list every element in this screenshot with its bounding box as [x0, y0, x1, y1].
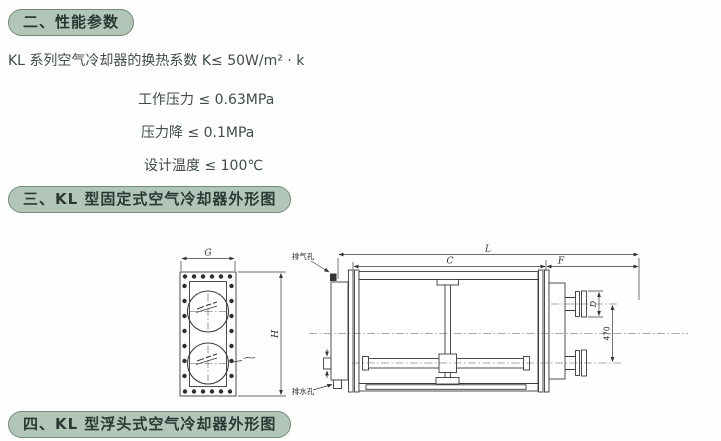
end-view-drawing: G — [180, 249, 286, 397]
side-view-drawing: L C F 排气孔 排水孔 — [292, 245, 688, 397]
dim-label-L: L — [484, 245, 491, 255]
drain-nozzle — [334, 380, 342, 389]
dim-label-C: C — [447, 257, 454, 267]
dim-label-470: 470 — [603, 326, 612, 341]
dim-label-G: G — [204, 249, 211, 259]
design-temp-spec: 设计温度 ≤ 100℃ — [144, 155, 263, 175]
vent-nozzle — [330, 274, 337, 282]
section-title: 二、性能参数 — [23, 13, 119, 31]
page: 二、性能参数 KL 系列空气冷却器的换热系数 K≤ 50W/m² · k 工作压… — [0, 0, 721, 441]
section-header-floating-outline: 四、KL 型浮头式空气冷却器外形图 — [8, 411, 291, 438]
left-water-box — [331, 282, 348, 380]
heat-transfer-spec: KL 系列空气冷却器的换热系数 K≤ 50W/m² · k — [8, 50, 304, 70]
pressure-drop-spec: 压力降 ≤ 0.1MPa — [141, 122, 254, 142]
section-title: 三、KL 型固定式空气冷却器外形图 — [23, 190, 276, 208]
dim-label-D: D — [589, 300, 598, 308]
dim-label-H: H — [271, 330, 281, 339]
technical-drawing: G — [0, 225, 721, 405]
vent-label: 排气孔 — [292, 251, 315, 261]
shell-body — [359, 272, 538, 392]
working-pressure-spec: 工作压力 ≤ 0.63MPa — [138, 89, 274, 109]
dim-label-F: F — [557, 257, 565, 267]
drain-label: 排水孔 — [292, 386, 315, 396]
section-header-performance: 二、性能参数 — [8, 9, 134, 36]
left-stub-pipe — [324, 358, 332, 369]
section-header-fixed-outline: 三、KL 型固定式空气冷却器外形图 — [8, 186, 291, 213]
section-title: 四、KL 型浮头式空气冷却器外形图 — [23, 415, 276, 433]
right-water-box — [549, 283, 565, 379]
